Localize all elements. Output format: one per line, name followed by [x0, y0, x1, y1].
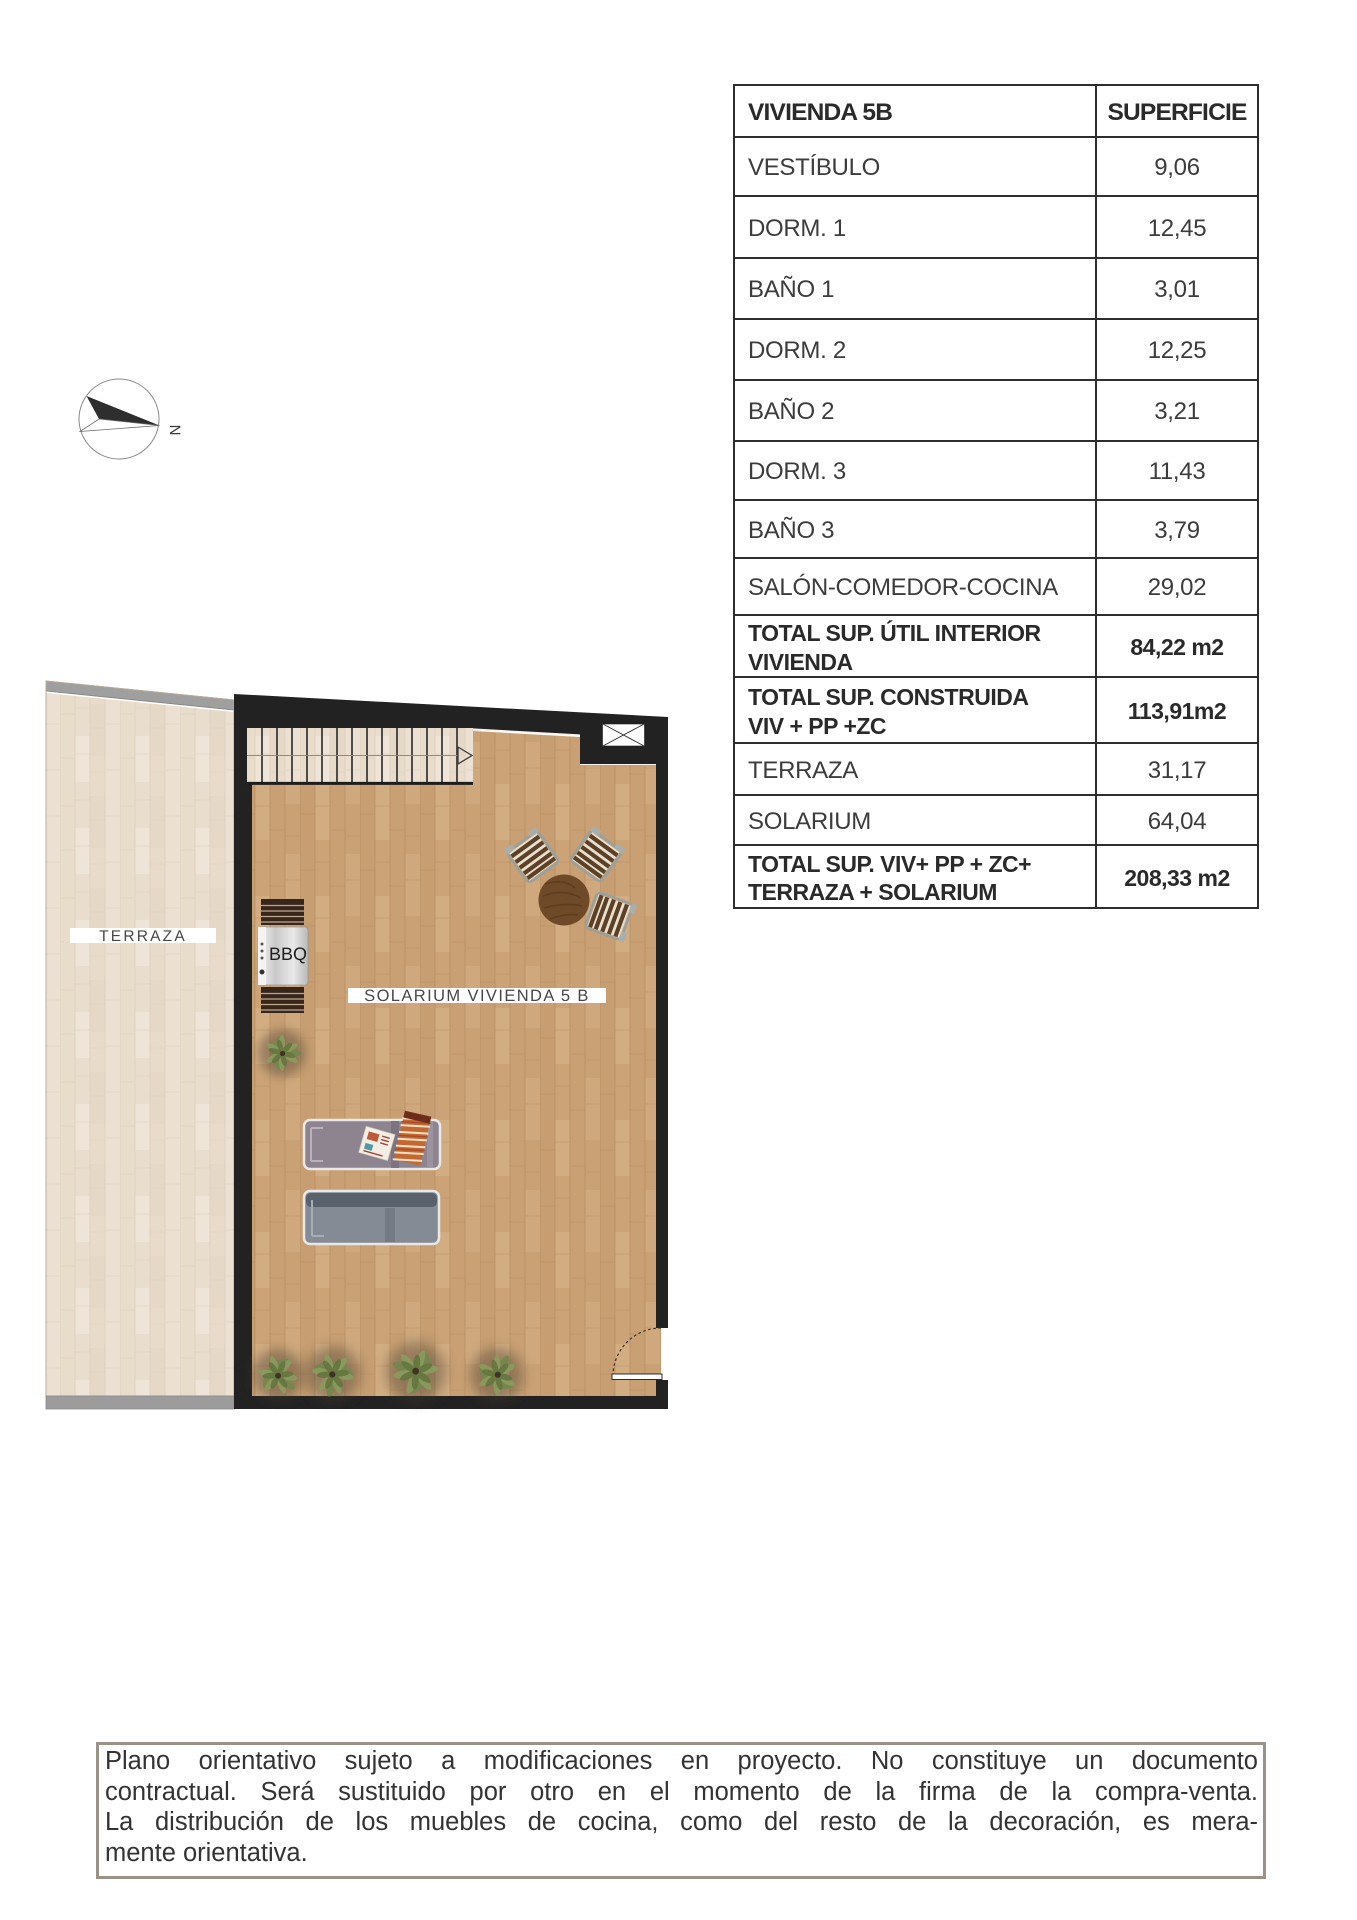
svg-text:N: N: [166, 425, 183, 436]
svg-text:BBQ: BBQ: [269, 944, 307, 964]
svg-text:TERRAZA: TERRAZA: [99, 928, 187, 945]
svg-text:SOLARIUM VIVIENDA 5 B: SOLARIUM VIVIENDA 5 B: [364, 987, 590, 1005]
